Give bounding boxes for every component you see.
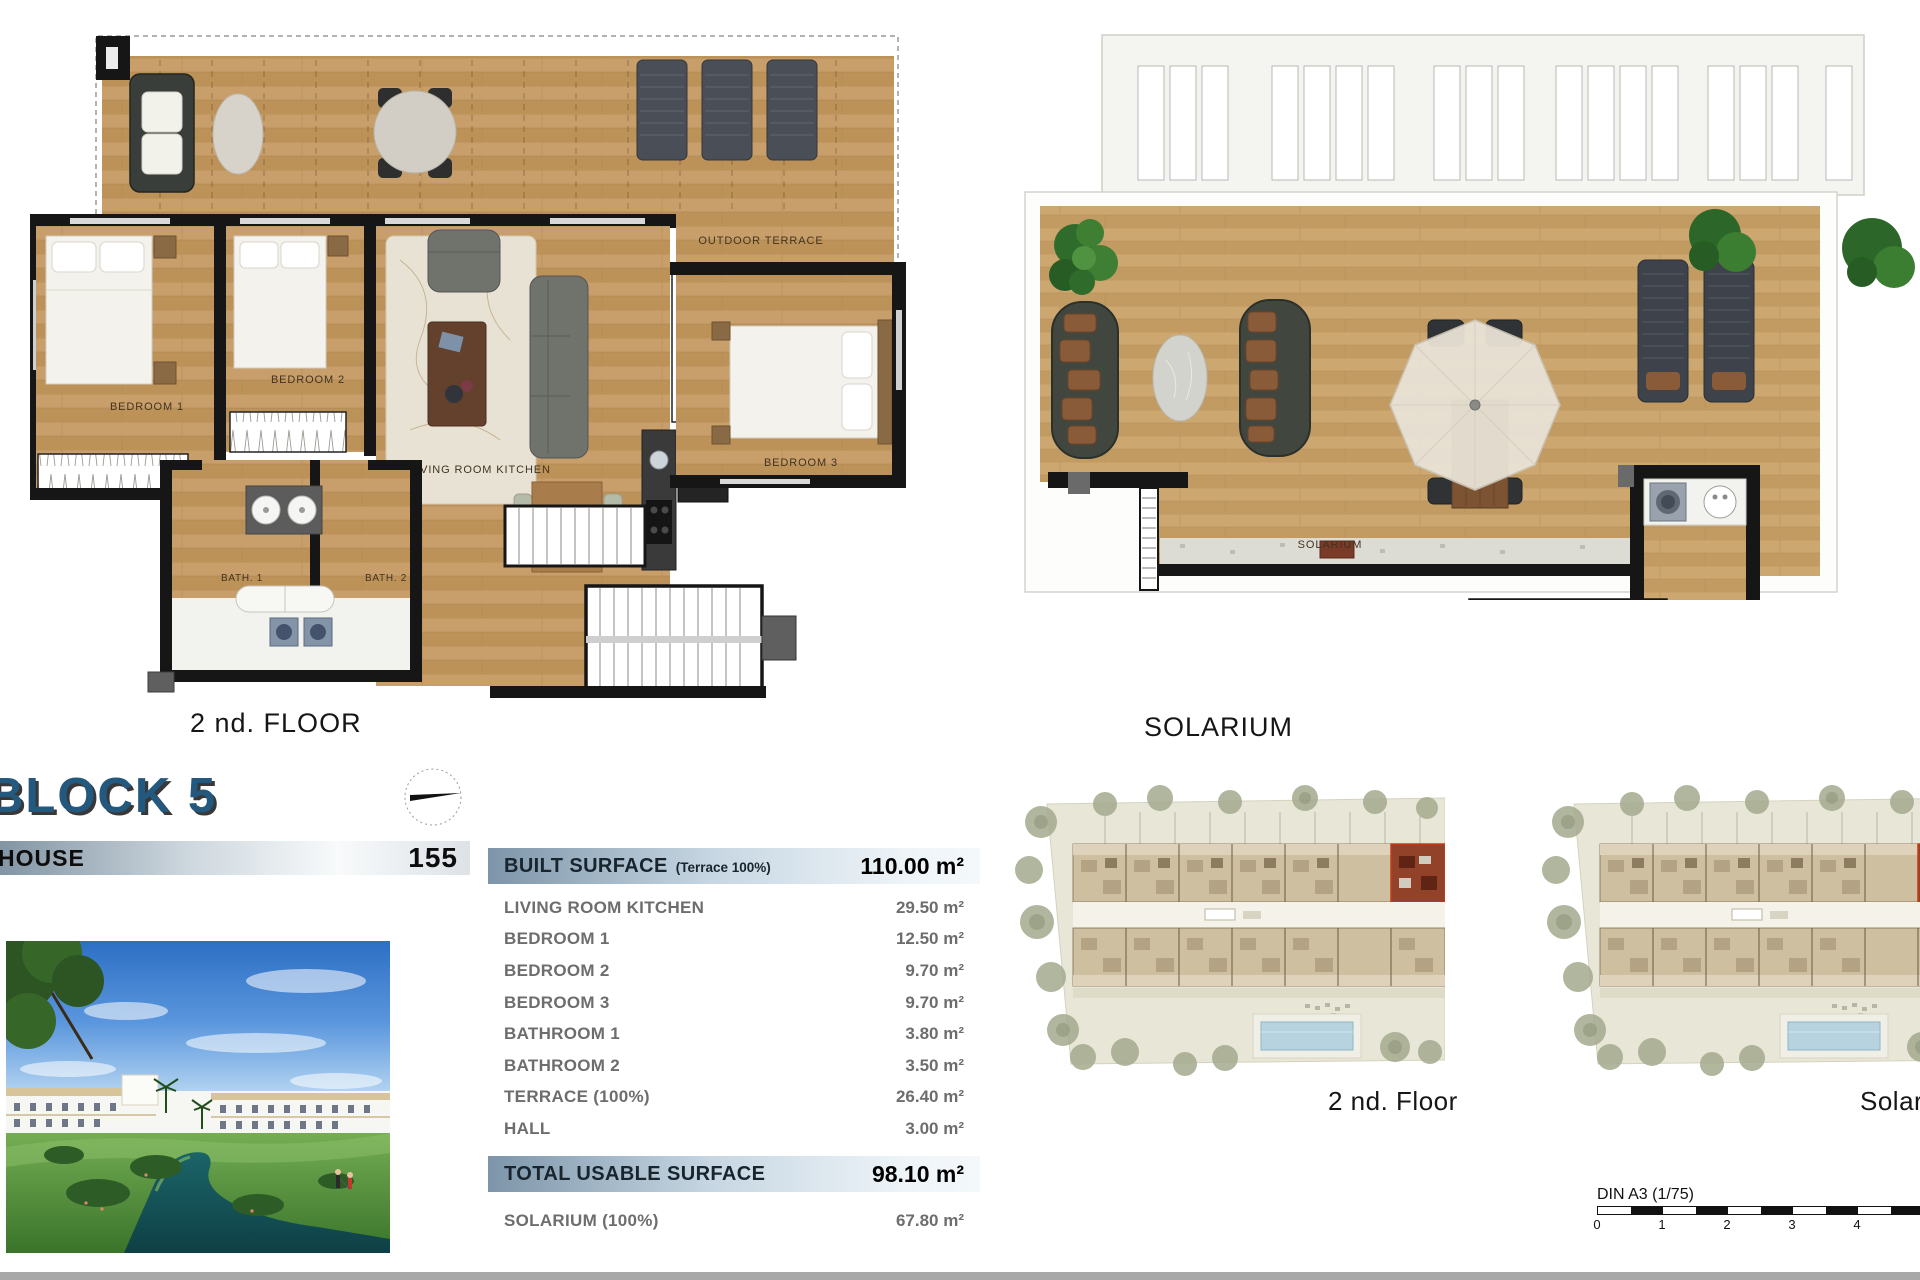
site-plan-second-floor <box>975 752 1445 1112</box>
armchair <box>428 230 500 292</box>
cooktop <box>646 500 672 544</box>
nightstand <box>328 236 348 256</box>
scale-tick: 4 <box>1849 1217 1865 1232</box>
table-row: BEDROOM 39.70 m² <box>488 987 980 1019</box>
wall-bedroom2-living <box>364 226 376 456</box>
row-value: 12.50 m² <box>896 929 980 949</box>
oval-side-table <box>1153 335 1207 421</box>
built-surface-header: BUILT SURFACE (Terrace 100%) 110.00 m² <box>488 848 980 884</box>
outdoor-terrace-label: OUTDOOR TERRACE <box>698 235 823 247</box>
row-label: BEDROOM 3 <box>488 993 610 1013</box>
pool <box>1261 1022 1353 1050</box>
nightstand <box>712 426 730 444</box>
nightstand <box>154 362 176 384</box>
terrace-dining-set <box>374 88 456 178</box>
window-bedroom3 <box>720 479 810 484</box>
scale-tick: 3 <box>1784 1217 1800 1232</box>
window-right <box>896 310 902 390</box>
row-label: BEDROOM 2 <box>488 961 610 981</box>
site-floor-caption: 2 nd. Floor <box>1328 1086 1458 1117</box>
scale-tick: 0 <box>1589 1217 1605 1232</box>
wall-post-slit <box>106 47 118 69</box>
row-value: 9.70 m² <box>905 993 980 1013</box>
wall-pillar <box>148 672 174 692</box>
table-row: BATHROOM 23.50 m² <box>488 1050 980 1082</box>
row-value: 9.70 m² <box>905 961 980 981</box>
bedroom-3: BEDROOM 3 <box>676 275 892 475</box>
parasol-umbrella <box>1390 320 1560 490</box>
table-row: HALL3.00 m² <box>488 1113 980 1145</box>
deck-bottom-wall <box>1158 564 1640 576</box>
sun-loungers <box>637 60 817 160</box>
north-compass-icon <box>401 765 465 829</box>
scale-segment <box>1696 1207 1729 1214</box>
total-surface-label: TOTAL USABLE SURFACE <box>488 1163 765 1186</box>
bath2-label: BATH. 2 <box>365 573 407 584</box>
row-label: LIVING ROOM KITCHEN <box>488 898 704 918</box>
row-label: HALL <box>488 1119 551 1139</box>
table-row: LIVING ROOM KITCHEN29.50 m² <box>488 892 980 924</box>
scale-segment <box>1826 1207 1859 1214</box>
site-solarium-caption: Solarium <box>1860 1086 1920 1117</box>
terrace-oval-table <box>213 94 263 174</box>
bedroom3-label: BEDROOM 3 <box>764 457 838 469</box>
side-stairs <box>1140 488 1158 590</box>
bedroom-1: BEDROOM 1 <box>36 226 214 496</box>
surface-rows: LIVING ROOM KITCHEN29.50 m² BEDROOM 112.… <box>488 892 980 1145</box>
resort-photo <box>6 941 390 1253</box>
bathrooms: BATH. 1 BATH. 2 <box>148 460 422 692</box>
bedroom-2: BEDROOM 2 <box>226 226 364 452</box>
row-value: 3.50 m² <box>905 1056 980 1076</box>
solarium-surface-value: 67.80 m² <box>896 1211 980 1231</box>
scale-segment <box>1761 1207 1794 1214</box>
table-row: TERRACE (100%)26.40 m² <box>488 1082 980 1114</box>
total-surface-header: TOTAL USABLE SURFACE 98.10 m² <box>488 1156 980 1192</box>
living-label: LIVING ROOM KITCHEN <box>409 464 551 476</box>
stair-landing-block <box>762 616 796 660</box>
row-value: 3.00 m² <box>905 1119 980 1139</box>
bottom-strip <box>0 1272 1920 1280</box>
scale-tick: 1 <box>1654 1217 1670 1232</box>
site-plan-solarium <box>1502 752 1920 1112</box>
outdoor-sofa <box>1052 302 1118 458</box>
nightstand <box>154 236 176 258</box>
row-label: BATHROOM 2 <box>488 1056 620 1076</box>
row-label: TERRACE (100%) <box>488 1087 650 1107</box>
scale-segment <box>1891 1207 1920 1214</box>
terrace-sofa <box>130 74 194 192</box>
solarium-surface-label: SOLARIUM (100%) <box>488 1211 659 1231</box>
row-label: BEDROOM 1 <box>488 929 610 949</box>
table-row: BATHROOM 13.80 m² <box>488 1018 980 1050</box>
scale-bar <box>1597 1206 1920 1215</box>
outdoor-sofa <box>1240 300 1310 456</box>
tree <box>1842 218 1915 288</box>
total-surface-value: 98.10 m² <box>872 1161 980 1188</box>
row-label: BATHROOM 1 <box>488 1024 620 1044</box>
sink <box>650 451 668 469</box>
wardrobe <box>230 412 346 452</box>
scale-segment <box>1631 1207 1664 1214</box>
house-bar: HOUSE 155 <box>0 841 470 875</box>
bedroom2-label: BEDROOM 2 <box>271 374 345 386</box>
wall-pillar <box>1068 472 1090 494</box>
nightstand <box>712 322 730 340</box>
row-value: 26.40 m² <box>896 1087 980 1107</box>
bath1-label: BATH. 1 <box>221 573 263 584</box>
highlighted-unit <box>1391 844 1445 902</box>
built-surface-label: BUILT SURFACE <box>488 855 668 878</box>
built-surface-note: (Terrace 100%) <box>676 860 771 875</box>
pergola <box>1102 35 1864 195</box>
sofa <box>530 276 588 458</box>
bedroom1-label: BEDROOM 1 <box>110 401 184 413</box>
scale-tick: 2 <box>1719 1217 1735 1232</box>
round-sink <box>1704 486 1736 518</box>
row-value: 29.50 m² <box>896 898 980 918</box>
built-surface-value: 110.00 m² <box>860 853 980 880</box>
hall: HALL <box>1618 465 1760 600</box>
block-title: BLOCK 5 <box>0 768 217 824</box>
solarium-plan: HALL SOLARIUM <box>1020 20 1920 600</box>
table-row: BEDROOM 29.70 m² <box>488 955 980 987</box>
solarium-surface-row: SOLARIUM (100%) 67.80 m² <box>488 1206 980 1236</box>
solarium-caption: SOLARIUM <box>1144 712 1293 743</box>
wall-bedroom3-top <box>670 262 906 275</box>
row-value: 3.80 m² <box>905 1024 980 1044</box>
house-label: HOUSE <box>0 845 85 872</box>
solarium-room-label: SOLARIUM <box>1298 539 1363 551</box>
second-floor-plan: BEDROOM 1 BEDROOM 2 LIVING ROOM KITCHEN <box>30 30 910 720</box>
table-row: BEDROOM 112.50 m² <box>488 924 980 956</box>
second-floor-caption: 2 nd. FLOOR <box>190 708 362 739</box>
floorplan-sheet: { "plans": { "second_floor": { "caption"… <box>0 0 1920 1280</box>
wall-bedroom1-2 <box>214 226 226 494</box>
house-number: 155 <box>408 842 470 874</box>
scale-label: DIN A3 (1/75) <box>1597 1186 1694 1204</box>
